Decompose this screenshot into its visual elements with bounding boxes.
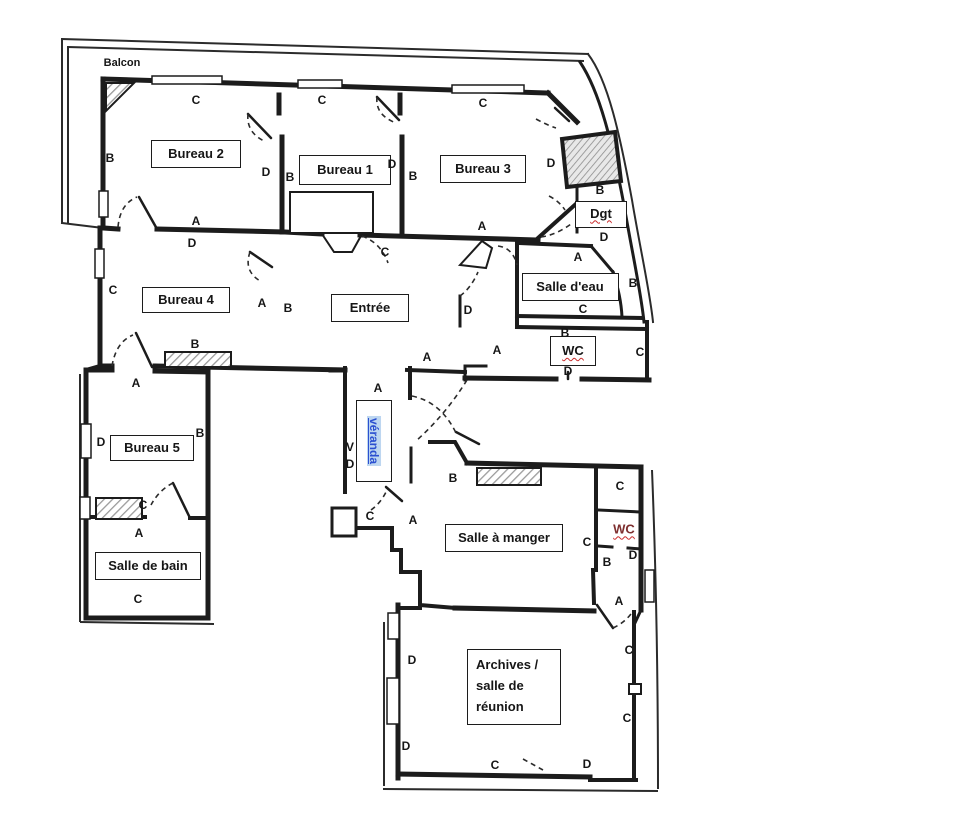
double-door-sill bbox=[322, 234, 362, 252]
corner-hatch bbox=[106, 83, 134, 111]
shaft-hatch bbox=[562, 132, 621, 187]
wall-tick bbox=[629, 684, 641, 694]
exterior-walls bbox=[86, 62, 647, 780]
window-salle-a-manger bbox=[477, 468, 541, 485]
duct-box bbox=[332, 508, 356, 536]
floor-plan-drawing bbox=[0, 0, 960, 834]
radiator-bureau4 bbox=[165, 352, 231, 367]
radiator-salle-de-bain bbox=[96, 498, 142, 519]
fixtures bbox=[290, 192, 492, 268]
hatched-features bbox=[96, 83, 641, 694]
exterior-thin-lines bbox=[80, 374, 658, 791]
closet-bureau1 bbox=[290, 192, 373, 233]
duct-entree bbox=[460, 241, 492, 268]
floor-plan: BalconBureau 2Bureau 1Bureau 3Bureau 4En… bbox=[0, 0, 960, 834]
